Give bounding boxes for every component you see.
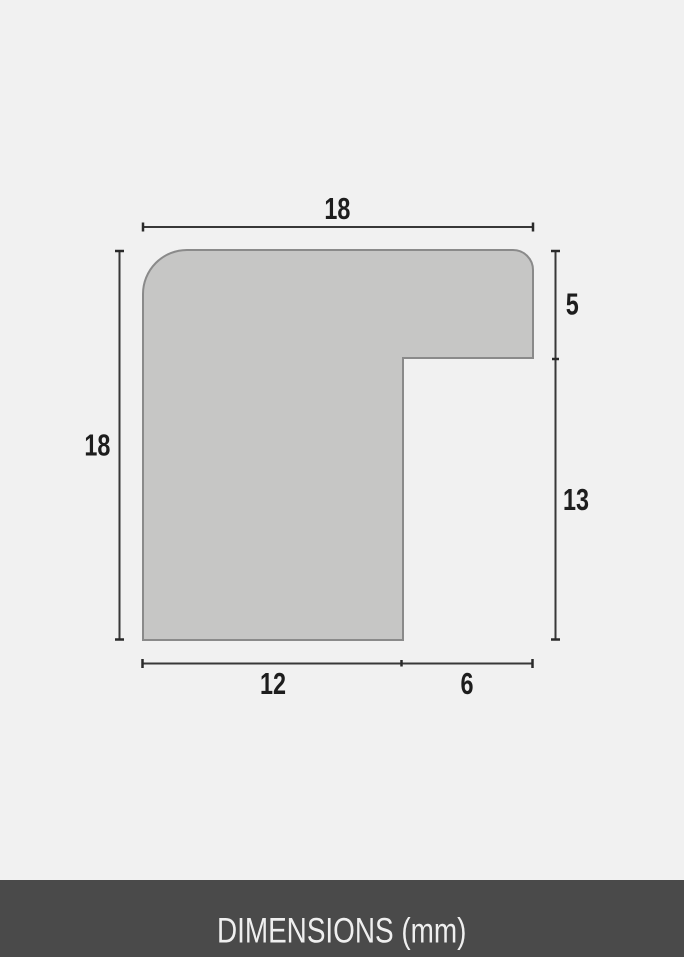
svg-text:12: 12 [260,666,286,701]
svg-text:6: 6 [461,666,474,701]
svg-text:18: 18 [84,428,110,463]
svg-text:5: 5 [566,287,579,322]
svg-text:13: 13 [563,482,589,517]
svg-text:18: 18 [324,191,350,226]
svg-text:DIMENSIONS (mm): DIMENSIONS (mm) [217,912,467,951]
